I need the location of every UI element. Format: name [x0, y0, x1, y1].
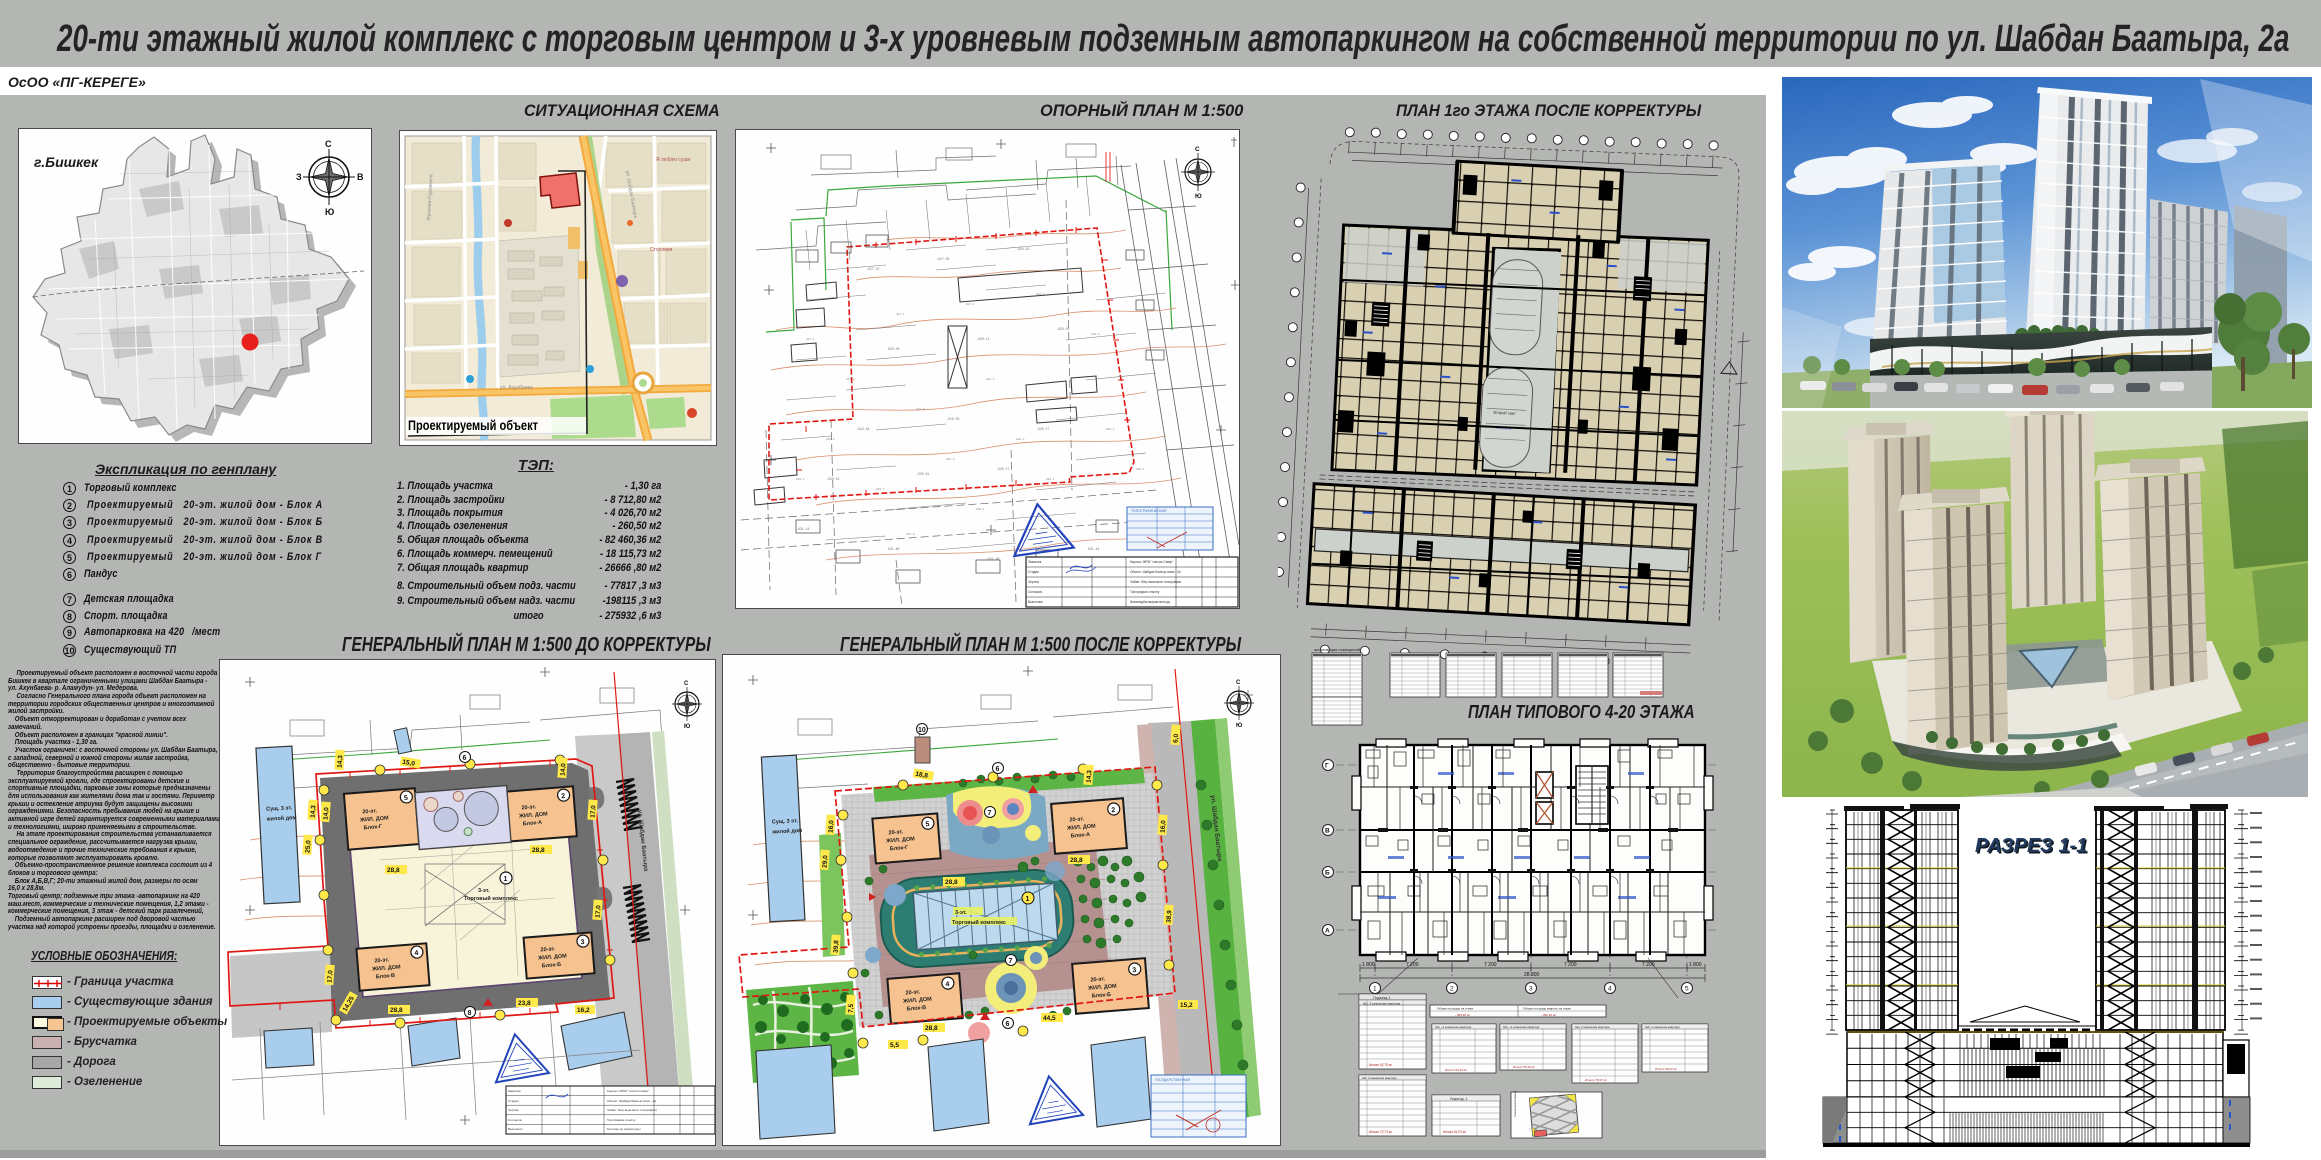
svg-text:Инвалидбылмараптастыру: Инвалидбылмараптастыру [1130, 600, 1170, 604]
svg-text:7 200: 7 200 [1564, 962, 1577, 968]
svg-text:г.Бишкек: г.Бишкек [34, 154, 99, 170]
svg-text:827.3: 827.3 [966, 303, 975, 306]
svg-text:Кыргыз: ЖРМ "тополя Сквер": Кыргыз: ЖРМ "тополя Сквер" [607, 1089, 649, 1093]
svg-text:20-эт.: 20-эт. [362, 808, 378, 815]
svg-text:Подъезд 1: Подъезд 1 [1373, 996, 1390, 1000]
svg-text:28,8: 28,8 [387, 867, 400, 874]
svg-text:Кыргыз: ЖРМ "тополя Сквер": Кыргыз: ЖРМ "тополя Сквер" [1130, 560, 1173, 564]
svg-text:829.3: 829.3 [1016, 438, 1025, 441]
svg-text:39,8: 39,8 [832, 940, 840, 953]
svg-text:4: 4 [414, 950, 419, 957]
svg-text:ул. Ахунбаева: ул. Ахунбаева [500, 385, 533, 391]
svg-text:Объект: Шабдан Баатыр комп., 2: Объект: Шабдан Баатыр комп., 2а [607, 1099, 656, 1103]
svg-text:14,3: 14,3 [336, 755, 344, 768]
svg-text:829.8: 829.8 [946, 458, 955, 461]
svg-text:1 800: 1 800 [1362, 962, 1375, 968]
svg-text:Итого 92,78 м²: Итого 92,78 м² [1369, 1063, 1393, 1067]
svg-text:- 483,28 м²: - 483,28 м² [1455, 1013, 1470, 1017]
svg-text:2: 2 [561, 793, 566, 800]
svg-text:№5, 1 комнатная квартира: №5, 1 комнатная квартира [1645, 1025, 1680, 1029]
svg-text:15,2: 15,2 [1180, 1002, 1193, 1009]
svg-text:Ю: Ю [684, 724, 690, 730]
svg-text:№6. 2 комнатная квартира: №6. 2 комнатная квартира [1362, 1076, 1397, 1080]
svg-text:Объект: Шабдан Баатыр комп., 2: Объект: Шабдан Баатыр комп., 2а [1130, 570, 1181, 574]
svg-text:Подъезд -1: Подъезд -1 [1450, 1097, 1468, 1101]
svg-text:Итого 61,03 м²: Итого 61,03 м² [1443, 1130, 1467, 1134]
svg-text:830.4: 830.4 [1046, 478, 1055, 481]
svg-text:5: 5 [925, 821, 930, 828]
svg-text:№2, +1 комнатная квартира: №2, +1 комнатная квартира [1435, 1025, 1472, 1029]
svg-text:7: 7 [1009, 958, 1013, 965]
svg-text:28,8: 28,8 [1070, 857, 1083, 864]
svg-text:Проектируемый объект: Проектируемый объект [408, 418, 538, 433]
svg-text:Выполнил: Выполнил [1028, 600, 1043, 604]
svg-text:20-эт.: 20-эт. [540, 946, 556, 953]
svg-text:№4, 2 комнатная квартира: №4, 2 комнатная квартира [1575, 1025, 1610, 1029]
svg-text:В: В [357, 172, 364, 182]
svg-text:20-эт.: 20-эт. [521, 804, 537, 811]
svg-text:-831.66: -831.66 [886, 547, 899, 551]
svg-text:Топография отыплу: Топография отыплу [607, 1118, 636, 1122]
svg-text:15,0: 15,0 [402, 759, 416, 768]
svg-text:6: 6 [1006, 1021, 1010, 1028]
svg-text:828.0: 828.0 [1091, 333, 1100, 336]
svg-text:14,0: 14,0 [559, 763, 567, 776]
svg-text:2: 2 [1111, 807, 1116, 814]
svg-text:Чабан: Жер выясняли топография: Чабан: Жер выясняли топография [1130, 580, 1181, 584]
svg-text:С: С [684, 681, 689, 687]
svg-text:-828.02: -828.02 [1056, 327, 1069, 331]
svg-text:6: 6 [996, 766, 1000, 773]
svg-text:-827.15: -827.15 [866, 267, 879, 271]
svg-text:Чертеж: Чертеж [508, 1108, 520, 1112]
svg-text:20-эт.: 20-эт. [1090, 976, 1106, 983]
svg-text:3-эт.: 3-эт. [955, 910, 967, 916]
svg-text:Торговый комплекс: Торговый комплекс [464, 895, 518, 902]
svg-text:Я люблю суши: Я люблю суши [656, 157, 690, 163]
svg-text:Итого 55,16 м²: Итого 55,16 м² [1513, 1065, 1536, 1069]
svg-text:16,0: 16,0 [827, 820, 835, 833]
svg-text:829.1: 829.1 [1106, 428, 1115, 431]
svg-text:1 800: 1 800 [1689, 962, 1702, 968]
svg-text:-830.42: -830.42 [826, 477, 839, 481]
svg-text:28,8: 28,8 [532, 847, 545, 854]
svg-text:Итого 48,22 м²: Итого 48,22 м² [1655, 1067, 1678, 1071]
svg-text:Ю: Ю [1195, 193, 1202, 200]
svg-text:23,8: 23,8 [518, 1000, 531, 1007]
svg-text:Согласов.: Согласов. [508, 1118, 522, 1122]
svg-text:830.2: 830.2 [796, 478, 805, 481]
svg-text:- 392,16 м²: - 392,16 м² [1541, 1013, 1556, 1017]
svg-text:4: 4 [945, 981, 950, 988]
svg-text:-831.44: -831.44 [1086, 547, 1099, 551]
svg-text:20-эт.: 20-эт. [1069, 816, 1085, 823]
svg-text:Заказчик: Заказчик [1028, 560, 1042, 564]
svg-text:С: С [325, 139, 332, 149]
svg-text:826.9: 826.9 [1036, 293, 1045, 296]
svg-text:С: С [1236, 680, 1241, 686]
svg-text:№3, +1 комнатная квартира: №3, +1 комнатная квартира [1503, 1025, 1540, 1029]
svg-text:-829.58: -829.58 [946, 417, 959, 421]
svg-text:29,0: 29,0 [821, 855, 829, 868]
svg-text:16,0: 16,0 [1159, 820, 1167, 833]
svg-text:829.2: 829.2 [826, 438, 835, 441]
svg-text:-829.46: -829.46 [856, 427, 869, 431]
svg-text:Стадия: Стадия [508, 1099, 519, 1103]
svg-text:Итого 53,33 м²: Итого 53,33 м² [1445, 1068, 1468, 1072]
svg-text:Столовая: Столовая [650, 247, 673, 253]
svg-text:7,5: 7,5 [847, 1003, 855, 1013]
svg-text:28,8: 28,8 [925, 1025, 938, 1032]
svg-text:№1. 3 комнатная квартира: №1. 3 комнатная квартира [1363, 1002, 1400, 1006]
svg-text:1: 1 [1026, 896, 1030, 903]
svg-text:Торговый комплекс: Торговый комплекс [952, 919, 1006, 926]
svg-text:7: 7 [988, 810, 992, 817]
svg-text:-828.12: -828.12 [976, 337, 989, 341]
svg-text:Выполнил: Выполнил [508, 1127, 523, 1131]
svg-text:Топография отыплу: Топография отыплу [1130, 590, 1160, 594]
svg-text:ГОСУДАРСТВЕННАЯ: ГОСУДАРСТВЕННАЯ [1155, 1078, 1191, 1082]
svg-text:5,5: 5,5 [890, 1042, 899, 1049]
svg-text:18,8: 18,8 [915, 771, 929, 780]
svg-text:Чабан: Жер выясняли топография: Чабан: Жер выясняли топография [607, 1108, 657, 1112]
svg-text:Общая площадь на этаже: Общая площадь на этаже [1437, 1007, 1474, 1011]
svg-text:1: 1 [504, 876, 508, 883]
svg-text:8: 8 [468, 1010, 472, 1017]
svg-text:Итого 72,73 м²: Итого 72,73 м² [1369, 1130, 1393, 1134]
svg-text:-828.06: -828.06 [886, 347, 899, 351]
svg-text:-827.09: -827.09 [936, 257, 949, 261]
svg-text:44,5: 44,5 [1043, 1015, 1056, 1022]
svg-text:28,8: 28,8 [390, 1007, 403, 1014]
svg-text:427.4: 427.4 [806, 338, 815, 341]
svg-text:3: 3 [580, 939, 585, 946]
svg-text:831.0: 831.0 [906, 533, 915, 536]
svg-text:Генплан до корректуры: Генплан до корректуры [607, 1127, 641, 1131]
svg-text:17,0: 17,0 [589, 805, 597, 818]
svg-text:830.8: 830.8 [976, 508, 985, 511]
svg-text:427.8: 427.8 [846, 378, 855, 381]
svg-text:427.1: 427.1 [896, 313, 905, 316]
svg-text:830.6: 830.6 [1136, 468, 1145, 471]
svg-text:25,0: 25,0 [304, 840, 312, 853]
svg-text:-826.91: -826.91 [1016, 247, 1029, 251]
svg-text:3: 3 [1132, 967, 1137, 974]
svg-text:Чертеж: Чертеж [1028, 580, 1040, 584]
svg-text:6,0: 6,0 [1172, 733, 1180, 743]
svg-text:16,2: 16,2 [577, 1007, 590, 1014]
svg-text:Общая площадь квартир на этаже: Общая площадь квартир на этаже [1523, 1007, 1571, 1011]
svg-text:20-эт.: 20-эт. [905, 989, 921, 996]
svg-text:17,0: 17,0 [326, 970, 334, 983]
svg-text:28 800: 28 800 [1524, 972, 1540, 978]
svg-text:828.9: 828.9 [916, 408, 925, 411]
svg-text:-831.46: -831.46 [986, 557, 999, 561]
svg-text:Итого 79,97 м²: Итого 79,97 м² [1585, 1078, 1608, 1082]
svg-text:В: В [1325, 828, 1330, 835]
svg-text:28,8: 28,8 [945, 879, 958, 886]
svg-text:Заказчик: Заказчик [508, 1089, 521, 1093]
svg-text:828.4: 828.4 [986, 378, 995, 381]
svg-text:ТОПОГРАФИЧЕСКАЯ: ТОПОГРАФИЧЕСКАЯ [1131, 509, 1167, 513]
svg-text:Ю: Ю [325, 207, 334, 217]
svg-text:С: С [1195, 146, 1200, 153]
svg-text:7 200: 7 200 [1484, 962, 1497, 968]
svg-text:Ю: Ю [1236, 723, 1242, 729]
svg-text:экспликация помещений: экспликация помещений [1314, 647, 1360, 652]
svg-text:Схема расположения: Схема расположения [1513, 1090, 1517, 1117]
svg-text:17,0: 17,0 [594, 905, 602, 918]
svg-text:Б: Б [1325, 870, 1330, 877]
svg-text:20-эт.: 20-эт. [374, 957, 390, 964]
svg-text:Стадия: Стадия [1028, 570, 1039, 574]
svg-text:6: 6 [463, 755, 467, 762]
svg-text:Согласов.: Согласов. [1028, 590, 1043, 594]
svg-text:38,9: 38,9 [1165, 910, 1173, 923]
svg-text:-830.61: -830.61 [916, 472, 929, 476]
svg-text:Г: Г [1325, 763, 1329, 770]
svg-text:-831.44: -831.44 [796, 527, 809, 531]
svg-text:5: 5 [404, 795, 409, 802]
svg-text:-830.17: -830.17 [996, 467, 1009, 471]
svg-text:14,3: 14,3 [309, 805, 317, 818]
svg-text:З: З [296, 172, 302, 182]
svg-text:3-эт.: 3-эт. [478, 888, 490, 894]
svg-text:-830.17: -830.17 [1036, 427, 1049, 431]
svg-text:7 200: 7 200 [1642, 962, 1655, 968]
svg-text:20-эт.: 20-эт. [888, 829, 904, 836]
svg-text:14,3: 14,3 [1085, 770, 1093, 783]
svg-text:830.1: 830.1 [876, 488, 885, 491]
svg-text:А: А [1325, 928, 1330, 935]
svg-text:14,0: 14,0 [322, 807, 330, 820]
svg-text:10: 10 [918, 727, 926, 734]
